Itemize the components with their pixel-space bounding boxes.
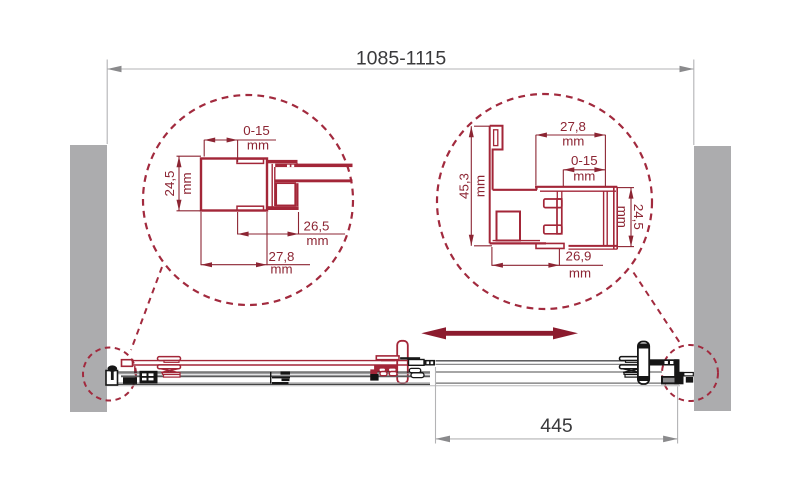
svg-text:445: 445 — [540, 415, 573, 437]
svg-text:1085-1115: 1085-1115 — [356, 48, 447, 70]
svg-text:mm: mm — [270, 262, 292, 277]
svg-text:24,5: 24,5 — [631, 204, 646, 230]
svg-text:26,5: 26,5 — [304, 219, 330, 234]
svg-text:mm: mm — [179, 172, 194, 194]
svg-text:mm: mm — [569, 266, 591, 281]
svg-text:mm: mm — [247, 138, 269, 153]
svg-text:mm: mm — [573, 168, 595, 183]
svg-text:0-15: 0-15 — [571, 153, 598, 168]
svg-text:mm: mm — [473, 175, 488, 197]
svg-text:27,8: 27,8 — [560, 119, 586, 134]
svg-text:mm: mm — [562, 133, 584, 148]
svg-text:26,9: 26,9 — [566, 249, 592, 264]
svg-text:0-15: 0-15 — [243, 123, 270, 138]
svg-text:45,3: 45,3 — [457, 173, 472, 199]
svg-text:24,5: 24,5 — [162, 171, 177, 197]
svg-text:mm: mm — [306, 233, 328, 248]
svg-text:mm: mm — [615, 206, 630, 228]
